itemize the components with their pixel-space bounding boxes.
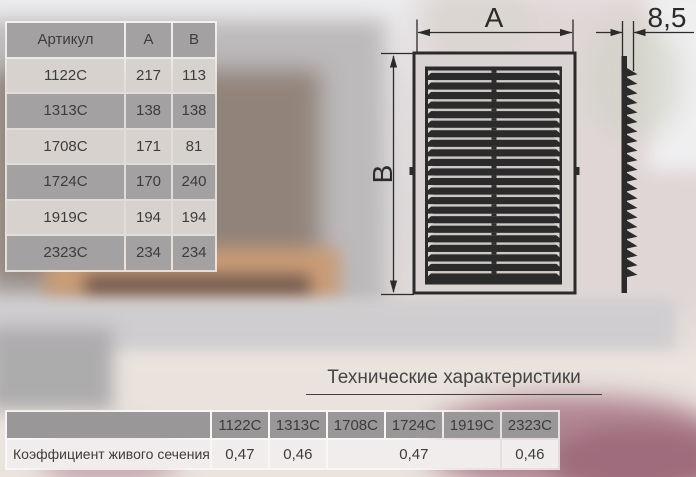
- bg-wall: [420, 0, 696, 310]
- article-cell: 1919С: [7, 201, 124, 235]
- bg-plant-top: [425, 0, 535, 55]
- spec-table-header: АртикулАВ: [7, 23, 215, 57]
- dimension-cell: 138: [173, 94, 215, 128]
- spec-table-row: 1708С17181: [7, 130, 215, 164]
- spec-table-row: 1122С217113: [7, 59, 215, 93]
- spec-table-row: 1313С138138: [7, 94, 215, 128]
- coef-value-cell: 0,47: [212, 440, 268, 468]
- page: В А 8,5 АртикулАВ 1122С217113: [0, 0, 696, 477]
- bg-wall-strip: [648, 0, 696, 170]
- coef-header-cell: 2323С: [502, 412, 558, 438]
- article-cell: 1313С: [7, 94, 124, 128]
- dimension-cell: 234: [173, 236, 215, 270]
- dimension-cell: 194: [126, 201, 171, 235]
- coef-header-cell: 1313С: [270, 412, 326, 438]
- coef-corner-cell: [7, 412, 210, 438]
- dimension-cell: 113: [173, 59, 215, 93]
- bg-pillow-dark: [552, 428, 696, 477]
- spec-table-row: 1724С170240: [7, 165, 215, 199]
- coef-header-cell: 1724С: [386, 412, 442, 438]
- spec-table-row: 2323С234234: [7, 236, 215, 270]
- bg-fire-logs: [85, 274, 310, 298]
- dimension-cell: 170: [126, 165, 171, 199]
- coef-header-cell: 1122С: [212, 412, 268, 438]
- spec-header-cell: В: [173, 23, 215, 57]
- bg-hearth-bench: [0, 299, 675, 357]
- article-cell: 2323С: [7, 236, 124, 270]
- article-cell: 1724С: [7, 165, 124, 199]
- dimension-cell: 194: [173, 201, 215, 235]
- dimension-cell: 81: [173, 130, 215, 164]
- spec-table: АртикулАВ 1122С2171131313С1381381708С171…: [5, 21, 217, 272]
- dimension-cell: 138: [126, 94, 171, 128]
- dimension-cell: 234: [126, 236, 171, 270]
- bg-plant: [585, 20, 680, 140]
- coef-value-cell: 0,46: [502, 440, 558, 468]
- spec-table-row: 1919С194194: [7, 201, 215, 235]
- article-cell: 1708С: [7, 130, 124, 164]
- dimension-cell: 240: [173, 165, 215, 199]
- spec-header-cell: А: [126, 23, 171, 57]
- coef-header-cell: 1919С: [444, 412, 500, 438]
- coef-value-cell: 0,47: [328, 440, 500, 468]
- dimension-cell: 171: [126, 130, 171, 164]
- coef-value-cell: 0,46: [270, 440, 326, 468]
- coefficient-table: 1122С1313С1708С1724С1919С2323С Коэффицие…: [5, 410, 560, 470]
- dimension-cell: 217: [126, 59, 171, 93]
- article-cell: 1122С: [7, 59, 124, 93]
- coef-header-cell: 1708С: [328, 412, 384, 438]
- coef-row-label: Коэффициент живого сечения: [7, 440, 210, 468]
- bg-dark-box: [0, 328, 113, 410]
- tech-characteristics-title: Технические характеристики: [306, 367, 602, 395]
- spec-header-cell: Артикул: [7, 23, 124, 57]
